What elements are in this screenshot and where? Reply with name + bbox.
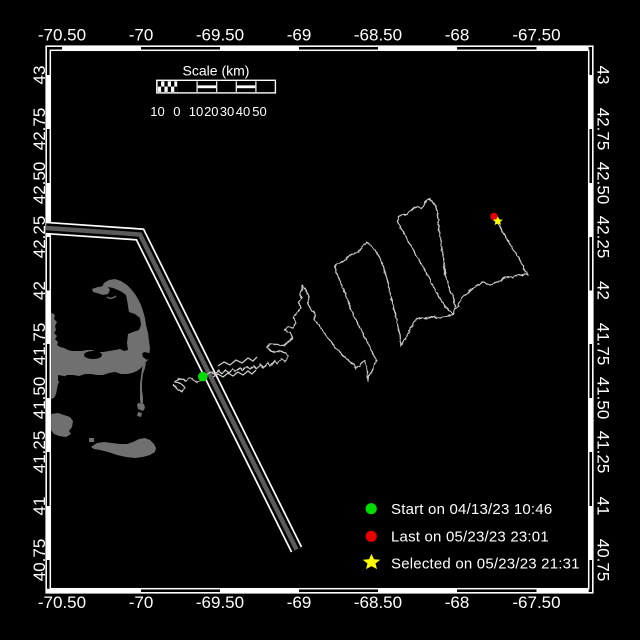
svg-text:-68: -68 <box>445 593 470 612</box>
svg-text:41: 41 <box>30 497 49 516</box>
svg-text:Scale (km): Scale (km) <box>183 63 250 79</box>
svg-text:41.75: 41.75 <box>594 323 613 366</box>
svg-text:-68.50: -68.50 <box>354 26 402 45</box>
svg-text:42: 42 <box>594 281 613 300</box>
svg-text:42: 42 <box>30 281 49 300</box>
svg-text:20: 20 <box>204 104 218 119</box>
svg-text:-69: -69 <box>287 593 312 612</box>
svg-text:-70: -70 <box>129 26 154 45</box>
svg-text:40.75: 40.75 <box>30 539 49 582</box>
svg-text:41.50: 41.50 <box>594 377 613 420</box>
svg-text:40: 40 <box>236 104 250 119</box>
svg-text:Last on 05/23/23 23:01: Last on 05/23/23 23:01 <box>391 529 549 546</box>
svg-text:42.75: 42.75 <box>594 108 613 151</box>
svg-text:-70.50: -70.50 <box>38 26 86 45</box>
svg-text:Selected on 05/23/23 21:31: Selected on 05/23/23 21:31 <box>391 556 580 573</box>
svg-text:Start on 04/13/23 10:46: Start on 04/13/23 10:46 <box>391 501 552 518</box>
svg-text:-70.50: -70.50 <box>38 593 86 612</box>
svg-text:10: 10 <box>189 104 203 119</box>
svg-text:42.50: 42.50 <box>594 162 613 205</box>
svg-text:42.25: 42.25 <box>594 216 613 259</box>
svg-text:-68.50: -68.50 <box>354 593 402 612</box>
svg-text:41: 41 <box>594 497 613 516</box>
svg-text:-70: -70 <box>129 593 154 612</box>
svg-text:41.25: 41.25 <box>594 431 613 474</box>
svg-text:-68: -68 <box>445 26 470 45</box>
svg-text:-69.50: -69.50 <box>196 593 244 612</box>
svg-text:41.50: 41.50 <box>30 377 49 420</box>
svg-text:41.25: 41.25 <box>30 431 49 474</box>
svg-text:42.25: 42.25 <box>30 216 49 259</box>
svg-text:-67.50: -67.50 <box>512 26 560 45</box>
svg-text:-69.50: -69.50 <box>196 26 244 45</box>
svg-text:42.50: 42.50 <box>30 162 49 205</box>
svg-text:30: 30 <box>220 104 234 119</box>
svg-text:50: 50 <box>252 104 266 119</box>
svg-text:43: 43 <box>30 66 49 85</box>
svg-text:41.75: 41.75 <box>30 323 49 366</box>
svg-text:-69: -69 <box>287 26 312 45</box>
svg-text:10: 10 <box>150 104 164 119</box>
svg-text:40.75: 40.75 <box>594 539 613 582</box>
svg-text:43: 43 <box>594 66 613 85</box>
svg-text:0: 0 <box>173 104 180 119</box>
svg-text:-67.50: -67.50 <box>512 593 560 612</box>
svg-text:42.75: 42.75 <box>30 108 49 151</box>
